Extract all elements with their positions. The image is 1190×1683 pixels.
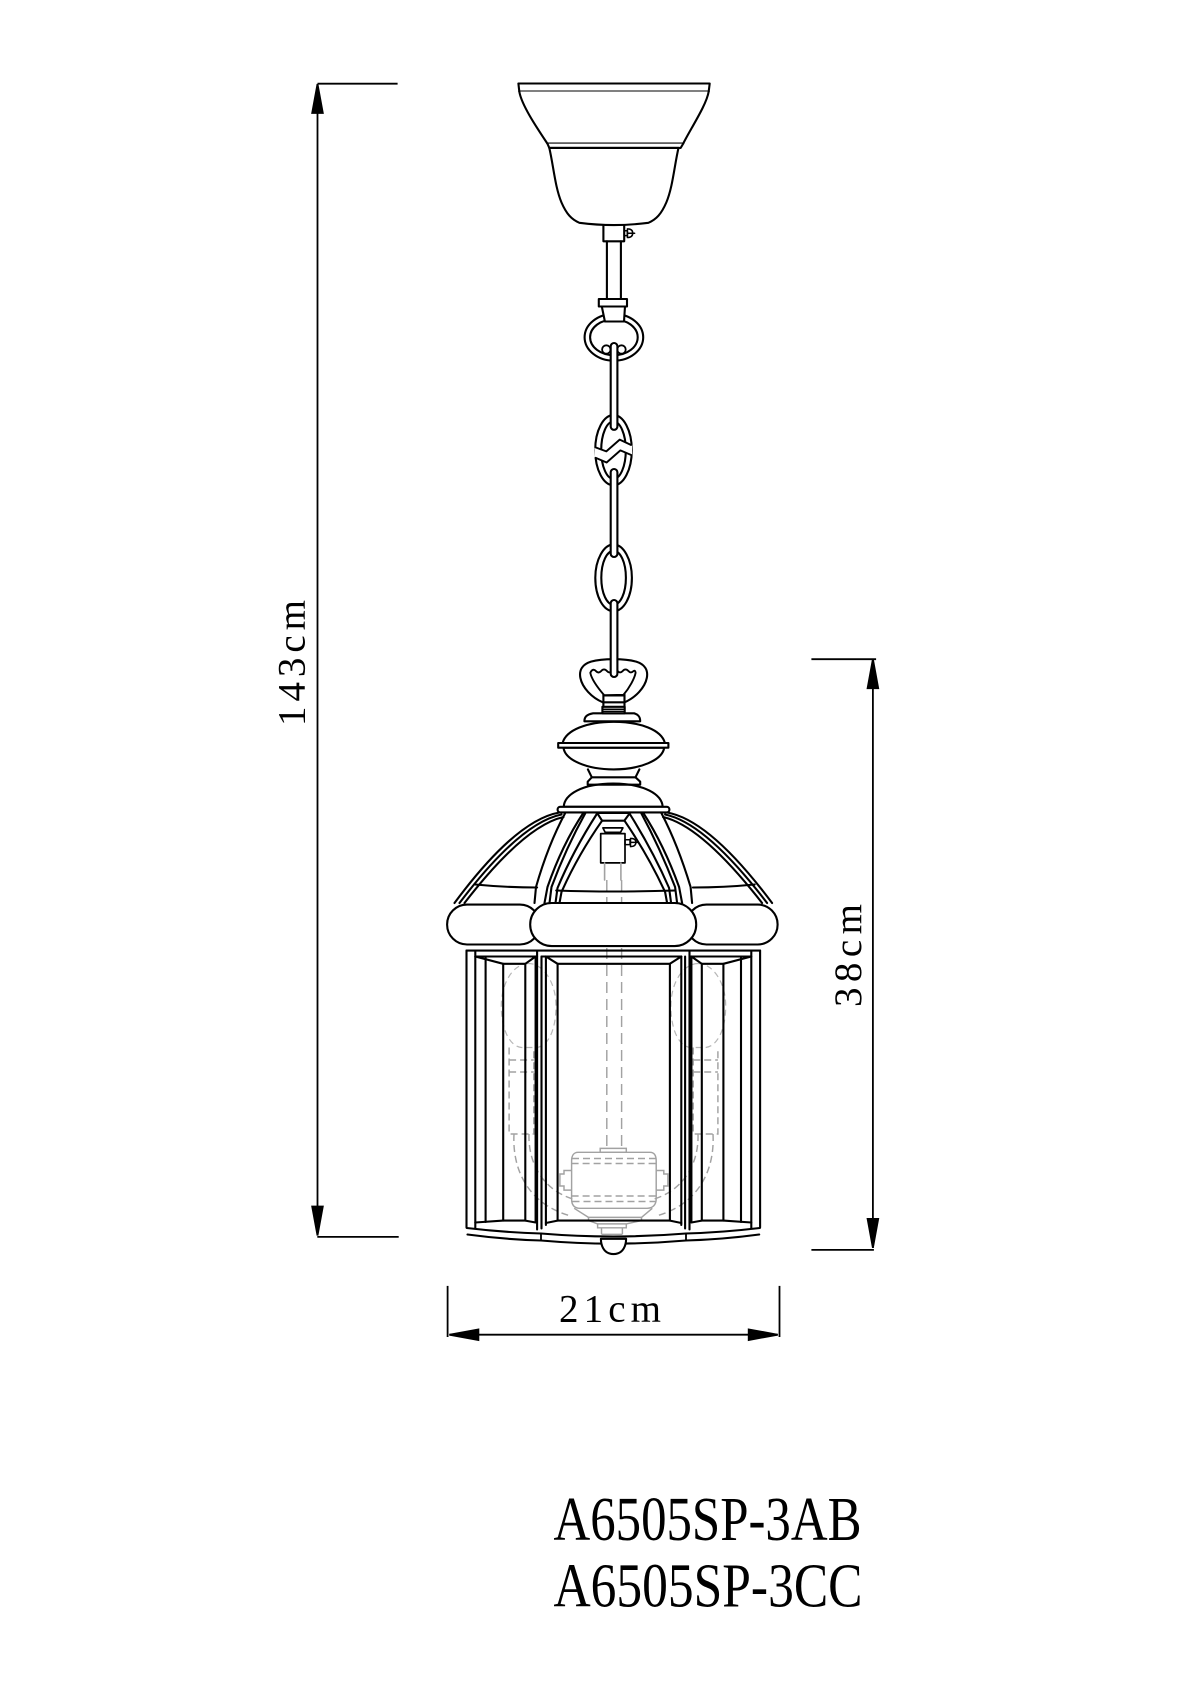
svg-text:21cm: 21cm xyxy=(559,1288,661,1331)
svg-text:A6505SP-3AB: A6505SP-3AB xyxy=(554,1484,862,1554)
svg-text:143cm: 143cm xyxy=(271,600,314,726)
svg-text:38cm: 38cm xyxy=(827,904,870,1007)
svg-text:A6505SP-3CC: A6505SP-3CC xyxy=(554,1550,863,1620)
